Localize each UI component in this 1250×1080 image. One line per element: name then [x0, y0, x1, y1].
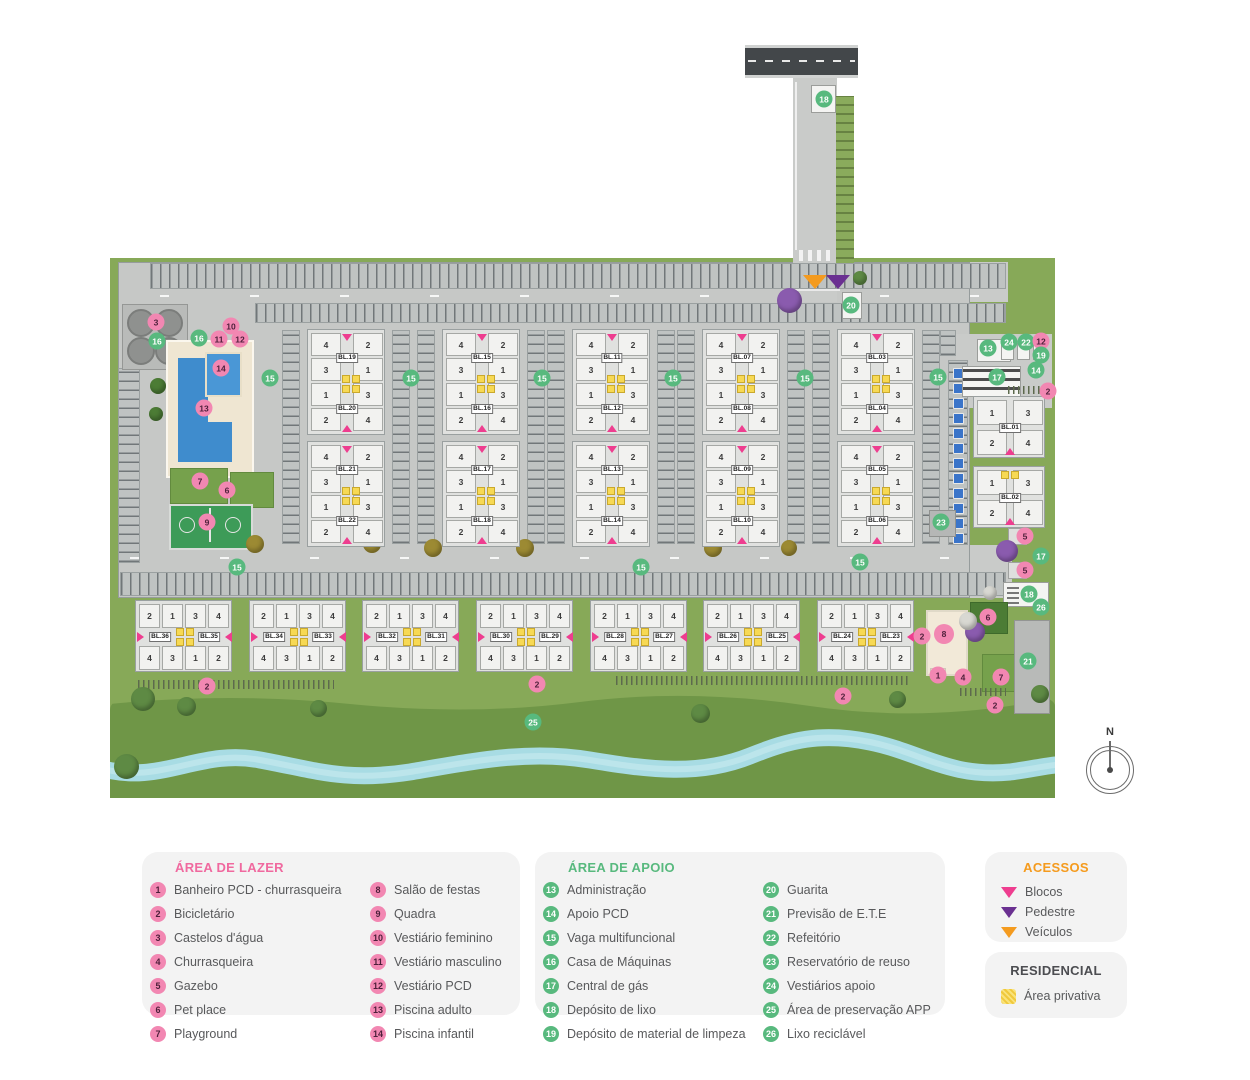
unit-cell: 3 [844, 646, 865, 670]
court-circle-right [225, 517, 241, 533]
legend-badge: 18 [543, 1002, 559, 1018]
unit-cell: 1 [311, 383, 341, 406]
legend-item-label: Pedestre [1025, 905, 1075, 919]
block-label: BL.17 [471, 465, 493, 475]
block-label: BL.30 [490, 632, 512, 642]
unit-cell: 2 [208, 646, 229, 670]
unit-cell: 4 [366, 646, 387, 670]
legend-item: 26Lixo reciclável [763, 1024, 931, 1044]
unit-cell: 1 [706, 495, 736, 518]
private-area-square [352, 487, 360, 495]
block-label: BL.15 [471, 353, 493, 363]
tree [424, 539, 442, 557]
unit-cell: 1 [299, 646, 320, 670]
private-area-square [352, 375, 360, 383]
veículos-access-swatch [1001, 927, 1017, 938]
legend-title-residencial: RESIDENCIAL [985, 963, 1127, 978]
map-marker-2: 2 [835, 688, 852, 705]
block-label: BL.01 [999, 423, 1021, 433]
unit-cell: 3 [753, 604, 774, 628]
private-area-square [882, 375, 890, 383]
legend-item-label: Bicicletário [174, 907, 234, 921]
residential-block-BL.09-BL.10: 42311324BL.09BL.10 [702, 441, 780, 547]
private-area-square [300, 638, 308, 646]
legend-badge: 1 [150, 882, 166, 898]
map-marker-15: 15 [229, 559, 246, 576]
driveway-green-strip [836, 96, 854, 286]
unit-cell: 2 [594, 604, 615, 628]
block-access-arrow [342, 334, 352, 341]
tree [1031, 685, 1049, 703]
legend-item: 6Pet place [150, 1000, 341, 1020]
map-marker-11: 11 [211, 331, 228, 348]
residential-block-BL.21-BL.22: 42311324BL.21BL.22 [307, 441, 385, 547]
map-marker-7: 7 [192, 473, 209, 490]
private-area-square [477, 385, 485, 393]
unit-cell: 2 [139, 604, 160, 628]
residential-block-BL.24-BL.23: 24133142BL.24BL.23 [817, 600, 914, 672]
unit-cell: 1 [446, 495, 476, 518]
map-marker-2: 2 [1040, 383, 1057, 400]
parking-strip-col2-right [657, 330, 675, 544]
block-label: BL.08 [731, 404, 753, 414]
private-area-square [517, 628, 525, 636]
map-marker-15: 15 [665, 370, 682, 387]
preservation-area [110, 690, 1055, 798]
legend-item-label: Churrasqueira [174, 955, 253, 969]
map-marker-9: 9 [199, 514, 216, 531]
parking-row-bottom [120, 572, 1006, 596]
map-marker-23: 23 [933, 514, 950, 531]
block-label: BL.35 [198, 632, 220, 642]
private-area-square [413, 628, 421, 636]
unit-cell: 3 [730, 646, 751, 670]
tree [889, 691, 906, 708]
unit-cell: 4 [139, 646, 160, 670]
private-area-square [858, 628, 866, 636]
private-area-square [300, 628, 308, 636]
unit-cell: 2 [977, 430, 1007, 455]
private-area-square [342, 497, 350, 505]
block-label: BL.33 [312, 632, 334, 642]
block-label: BL.16 [471, 404, 493, 414]
legend-badge: 19 [543, 1026, 559, 1042]
tree [691, 704, 710, 723]
private-area-square [744, 628, 752, 636]
legend-badge: 2 [150, 906, 166, 922]
unit-cell: 2 [480, 604, 501, 628]
map-marker-5: 5 [1017, 562, 1034, 579]
map-marker-6: 6 [219, 482, 236, 499]
legend-item: 13Administração [543, 880, 746, 900]
court-circle-left [179, 517, 195, 533]
private-area-square [737, 375, 745, 383]
legend-badge: 3 [150, 930, 166, 946]
legend-item: 9Quadra [370, 904, 502, 924]
unit-cell: 4 [322, 604, 343, 628]
block-access-arrow [607, 446, 617, 453]
map-marker-14: 14 [1028, 362, 1045, 379]
map-marker-24: 24 [1001, 334, 1018, 351]
block-label: BL.02 [999, 493, 1021, 503]
compass-north-label: N [1102, 726, 1118, 738]
legend-item-label: Castelos d'água [174, 931, 263, 945]
parking-strip-col1-right [527, 330, 545, 544]
residential-block-BL.19-BL.20: 42311324BL.19BL.20 [307, 329, 385, 435]
private-area-square [872, 497, 880, 505]
map-marker-2: 2 [914, 628, 931, 645]
accessible-parking-icon [953, 398, 964, 409]
block-access-arrow [607, 425, 617, 432]
map-marker-18: 18 [816, 91, 833, 108]
legend-panel-lazer: ÁREA DE LAZER 1Banheiro PCD - churrasque… [142, 852, 520, 1015]
block-access-arrow [607, 334, 617, 341]
private-area-square [607, 487, 615, 495]
parking-strip-col4-left [812, 330, 830, 544]
block-access-arrow [1005, 448, 1015, 455]
legend-item-label: Depósito de material de limpeza [567, 1027, 746, 1041]
private-area-swatch [1001, 989, 1016, 1004]
block-access-arrow [680, 632, 687, 642]
private-area-square [872, 375, 880, 383]
tree [131, 687, 155, 711]
map-marker-15: 15 [852, 554, 869, 571]
map-marker-15: 15 [930, 369, 947, 386]
block-access-arrow [1005, 518, 1015, 525]
river-svg [110, 690, 1055, 798]
legend-item: 8Salão de festas [370, 880, 502, 900]
tree [959, 612, 977, 630]
private-area-square [737, 497, 745, 505]
private-area-square [290, 628, 298, 636]
legend-badge: 13 [543, 882, 559, 898]
block-label: BL.04 [866, 404, 888, 414]
private-area-square [882, 487, 890, 495]
unit-cell: 4 [253, 646, 274, 670]
private-area-square [641, 638, 649, 646]
legend-item: 7Playground [150, 1024, 341, 1044]
legend-item-label: Lixo reciclável [787, 1027, 866, 1041]
unit-cell: 1 [753, 646, 774, 670]
pedestre-access-swatch [1001, 907, 1017, 918]
block-access-arrow [607, 537, 617, 544]
private-area-square [342, 385, 350, 393]
legend-item: 23Reservatório de reuso [763, 952, 931, 972]
unit-cell: 1 [162, 604, 183, 628]
legend-item-label: Vaga multifuncional [567, 931, 675, 945]
private-area-square [403, 638, 411, 646]
tree [853, 271, 867, 285]
block-label: BL.03 [866, 353, 888, 363]
legend-badge: 20 [763, 882, 779, 898]
block-label: BL.29 [539, 632, 561, 642]
block-access-arrow [251, 632, 258, 642]
adult-pool-bottom [178, 422, 232, 462]
unit-cell: 4 [890, 604, 911, 628]
legend-badge: 5 [150, 978, 166, 994]
legend-item-label: Piscina adulto [394, 1003, 472, 1017]
tree [149, 407, 163, 421]
unit-cell: 4 [707, 646, 728, 670]
private-area-square [352, 497, 360, 505]
block-access-arrow [477, 537, 487, 544]
private-area-square [617, 487, 625, 495]
unit-cell: 2 [977, 500, 1007, 525]
pedestre-access-icon [826, 275, 850, 289]
legend-item-label: Vestiário feminino [394, 931, 493, 945]
unit-cell: 1 [311, 495, 341, 518]
legend-lazer-col1: 1Banheiro PCD - churrasqueira2Bicicletár… [150, 880, 341, 1048]
legend-title-apoio: ÁREA DE APOIO [568, 860, 675, 875]
legend-item-label: Playground [174, 1027, 237, 1041]
private-area-square [607, 385, 615, 393]
block-access-arrow [872, 334, 882, 341]
block-access-arrow [342, 537, 352, 544]
map-marker-26: 26 [1033, 599, 1050, 616]
map-marker-16: 16 [191, 330, 208, 347]
legend-item-label: Previsão de E.T.E [787, 907, 886, 921]
accessible-parking-icon [953, 428, 964, 439]
legend-item-label: Banheiro PCD - churrasqueira [174, 883, 341, 897]
private-area-square [176, 638, 184, 646]
unit-cell: 2 [366, 604, 387, 628]
block-access-arrow [364, 632, 371, 642]
unit-cell: 1 [389, 604, 410, 628]
unit-cell: 4 [435, 604, 456, 628]
unit-cell: 4 [776, 604, 797, 628]
legend-item-label: Apoio PCD [567, 907, 629, 921]
legend-item-label: Quadra [394, 907, 436, 921]
bike-rack-hatch-b [616, 676, 908, 685]
block-access-arrow [737, 425, 747, 432]
legend-item: 16Casa de Máquinas [543, 952, 746, 972]
private-area-square [747, 487, 755, 495]
legend-item: 3Castelos d'água [150, 928, 341, 948]
block-label: BL.21 [336, 465, 358, 475]
pet-place-pad [230, 472, 274, 508]
map-marker-3: 3 [148, 314, 165, 331]
unit-cell: 1 [844, 604, 865, 628]
private-area-square [872, 487, 880, 495]
unit-cell: 3 [526, 604, 547, 628]
legend-item-label: Casa de Máquinas [567, 955, 671, 969]
private-area-square [477, 375, 485, 383]
block-label: BL.26 [717, 632, 739, 642]
private-area-label: Área privativa [1024, 989, 1100, 1003]
block-label: BL.07 [731, 353, 753, 363]
block-access-arrow [339, 632, 346, 642]
block-label: BL.10 [731, 516, 753, 526]
accessible-parking-icon [953, 488, 964, 499]
private-area-square [176, 628, 184, 636]
unit-cell: 1 [526, 646, 547, 670]
legend-apoio-col1: 13Administração14Apoio PCD15Vaga multifu… [543, 880, 746, 1048]
private-area-square [754, 638, 762, 646]
legend-item: 14Apoio PCD [543, 904, 746, 924]
legend-panel-apoio: ÁREA DE APOIO 13Administração14Apoio PCD… [535, 852, 945, 1015]
unit-cell: 3 [617, 646, 638, 670]
block-access-arrow [793, 632, 800, 642]
private-area-square [487, 487, 495, 495]
unit-cell: 3 [162, 646, 183, 670]
legend-access-item: Blocos [1001, 882, 1075, 902]
private-area-square [747, 385, 755, 393]
unit-cell: 3 [276, 646, 297, 670]
private-area-square [403, 628, 411, 636]
private-area-square [352, 385, 360, 393]
block-label: BL.23 [880, 632, 902, 642]
residential-block-BL.26-BL.25: 24133142BL.26BL.25 [703, 600, 800, 672]
tree [781, 540, 797, 556]
private-area-square [487, 375, 495, 383]
unit-cell: 3 [640, 604, 661, 628]
block-access-arrow [737, 537, 747, 544]
legend-item: 13Piscina adulto [370, 1000, 502, 1020]
block-access-arrow [225, 632, 232, 642]
block-access-arrow [478, 632, 485, 642]
legend-item-label: Central de gás [567, 979, 648, 993]
private-area-square [527, 638, 535, 646]
tree [983, 586, 997, 600]
private-area-square [1001, 471, 1009, 479]
legend-badge: 14 [543, 906, 559, 922]
legend-badge: 10 [370, 930, 386, 946]
legend-item-label: Depósito de lixo [567, 1003, 656, 1017]
block-label: BL.06 [866, 516, 888, 526]
tree [246, 535, 264, 553]
map-marker-15: 15 [633, 559, 650, 576]
block-label: BL.19 [336, 353, 358, 363]
tree [177, 697, 196, 716]
unit-cell: 1 [640, 646, 661, 670]
block-label: BL.09 [731, 465, 753, 475]
private-area-square [868, 638, 876, 646]
legend-item: 11Vestiário masculino [370, 952, 502, 972]
block-label: BL.27 [653, 632, 675, 642]
legend-title-lazer: ÁREA DE LAZER [175, 860, 284, 875]
private-area-square [617, 375, 625, 383]
accessible-parking-icon [953, 473, 964, 484]
legend-badge: 7 [150, 1026, 166, 1042]
block-label: BL.22 [336, 516, 358, 526]
map-marker-2: 2 [987, 697, 1004, 714]
legend-item: 10Vestiário feminino [370, 928, 502, 948]
legend-apoio-col2: 20Guarita21Previsão de E.T.E22Refeitório… [763, 880, 931, 1048]
unit-cell: 4 [1013, 500, 1043, 525]
private-area-square [487, 497, 495, 505]
residential-block-BL.17-BL.18: 42311324BL.17BL.18 [442, 441, 520, 547]
map-marker-4: 4 [955, 669, 972, 686]
block-access-arrow [342, 446, 352, 453]
accessible-parking-icon [953, 413, 964, 424]
map-marker-21: 21 [1020, 653, 1037, 670]
map-marker-7: 7 [993, 669, 1010, 686]
block-label: BL.20 [336, 404, 358, 414]
private-area-square [617, 385, 625, 393]
private-area-square [342, 375, 350, 383]
legend-item: 12Vestiário PCD [370, 976, 502, 996]
residential-block-BL.13-BL.14: 42311324BL.13BL.14 [572, 441, 650, 547]
parking-strip-col1-left [417, 330, 435, 544]
block-access-arrow [872, 537, 882, 544]
unit-cell: 1 [576, 383, 606, 406]
unit-cell: 2 [821, 604, 842, 628]
unit-cell: 1 [867, 646, 888, 670]
legend-badge: 9 [370, 906, 386, 922]
map-marker-20: 20 [843, 297, 860, 314]
legend-item: 14Piscina infantil [370, 1024, 502, 1044]
parking-strip-col0-left [282, 330, 300, 544]
blocos-access-swatch [1001, 887, 1017, 898]
legend-badge: 22 [763, 930, 779, 946]
unit-cell: 4 [594, 646, 615, 670]
block-label: BL.32 [376, 632, 398, 642]
residential-block-BL.32-BL.31: 24133142BL.32BL.31 [362, 600, 459, 672]
legend-badge: 13 [370, 1002, 386, 1018]
unit-cell: 2 [253, 604, 274, 628]
road-center-line [748, 60, 855, 62]
legend-badge: 11 [370, 954, 386, 970]
residential-block-BL.03-BL.04: 42311324BL.03BL.04 [837, 329, 915, 435]
map-marker-6: 6 [980, 609, 997, 626]
legend-item-label: Blocos [1025, 885, 1063, 899]
private-area-square [631, 638, 639, 646]
legend-title-acessos: ACESSOS [985, 860, 1127, 875]
bike-rack-hatch-d [960, 688, 1006, 696]
block-access-arrow [477, 425, 487, 432]
block-label: BL.36 [149, 632, 171, 642]
map-marker-2: 2 [529, 676, 546, 693]
unit-cell: 3 [867, 604, 888, 628]
residential-block-BL.34-BL.33: 24133142BL.34BL.33 [249, 600, 346, 672]
legend-item: 19Depósito de material de limpeza [543, 1024, 746, 1044]
legend-item-label: Salão de festas [394, 883, 480, 897]
block-access-arrow [737, 334, 747, 341]
legend-item-label: Refeitório [787, 931, 841, 945]
unit-cell: 1 [276, 604, 297, 628]
legend-acessos-rows: BlocosPedestreVeículos [1001, 882, 1075, 942]
map-marker-15: 15 [797, 370, 814, 387]
compass-needle [1109, 741, 1111, 770]
legend-badge: 17 [543, 978, 559, 994]
private-area-square [617, 497, 625, 505]
private-area-square [744, 638, 752, 646]
legend-badge: 16 [543, 954, 559, 970]
unit-cell: 1 [503, 604, 524, 628]
legend-item: 15Vaga multifuncional [543, 928, 746, 948]
unit-cell: 1 [576, 495, 606, 518]
unit-cell: 2 [707, 604, 728, 628]
legend-item: 1Banheiro PCD - churrasqueira [150, 880, 341, 900]
private-area-square [477, 497, 485, 505]
private-area-square [527, 628, 535, 636]
block-access-arrow [872, 425, 882, 432]
legend-badge: 23 [763, 954, 779, 970]
unit-cell: 1 [412, 646, 433, 670]
legend-item-label: Vestiário masculino [394, 955, 502, 969]
legend-badge: 25 [763, 1002, 779, 1018]
private-area-square [607, 375, 615, 383]
unit-cell: 2 [322, 646, 343, 670]
map-marker-17: 17 [989, 369, 1006, 386]
accessible-parking-icon [953, 458, 964, 469]
block-access-arrow [477, 446, 487, 453]
unit-cell: 1 [617, 604, 638, 628]
tree [114, 754, 139, 779]
unit-cell: 2 [776, 646, 797, 670]
block-access-arrow [872, 446, 882, 453]
legend-item: 21Previsão de E.T.E [763, 904, 931, 924]
